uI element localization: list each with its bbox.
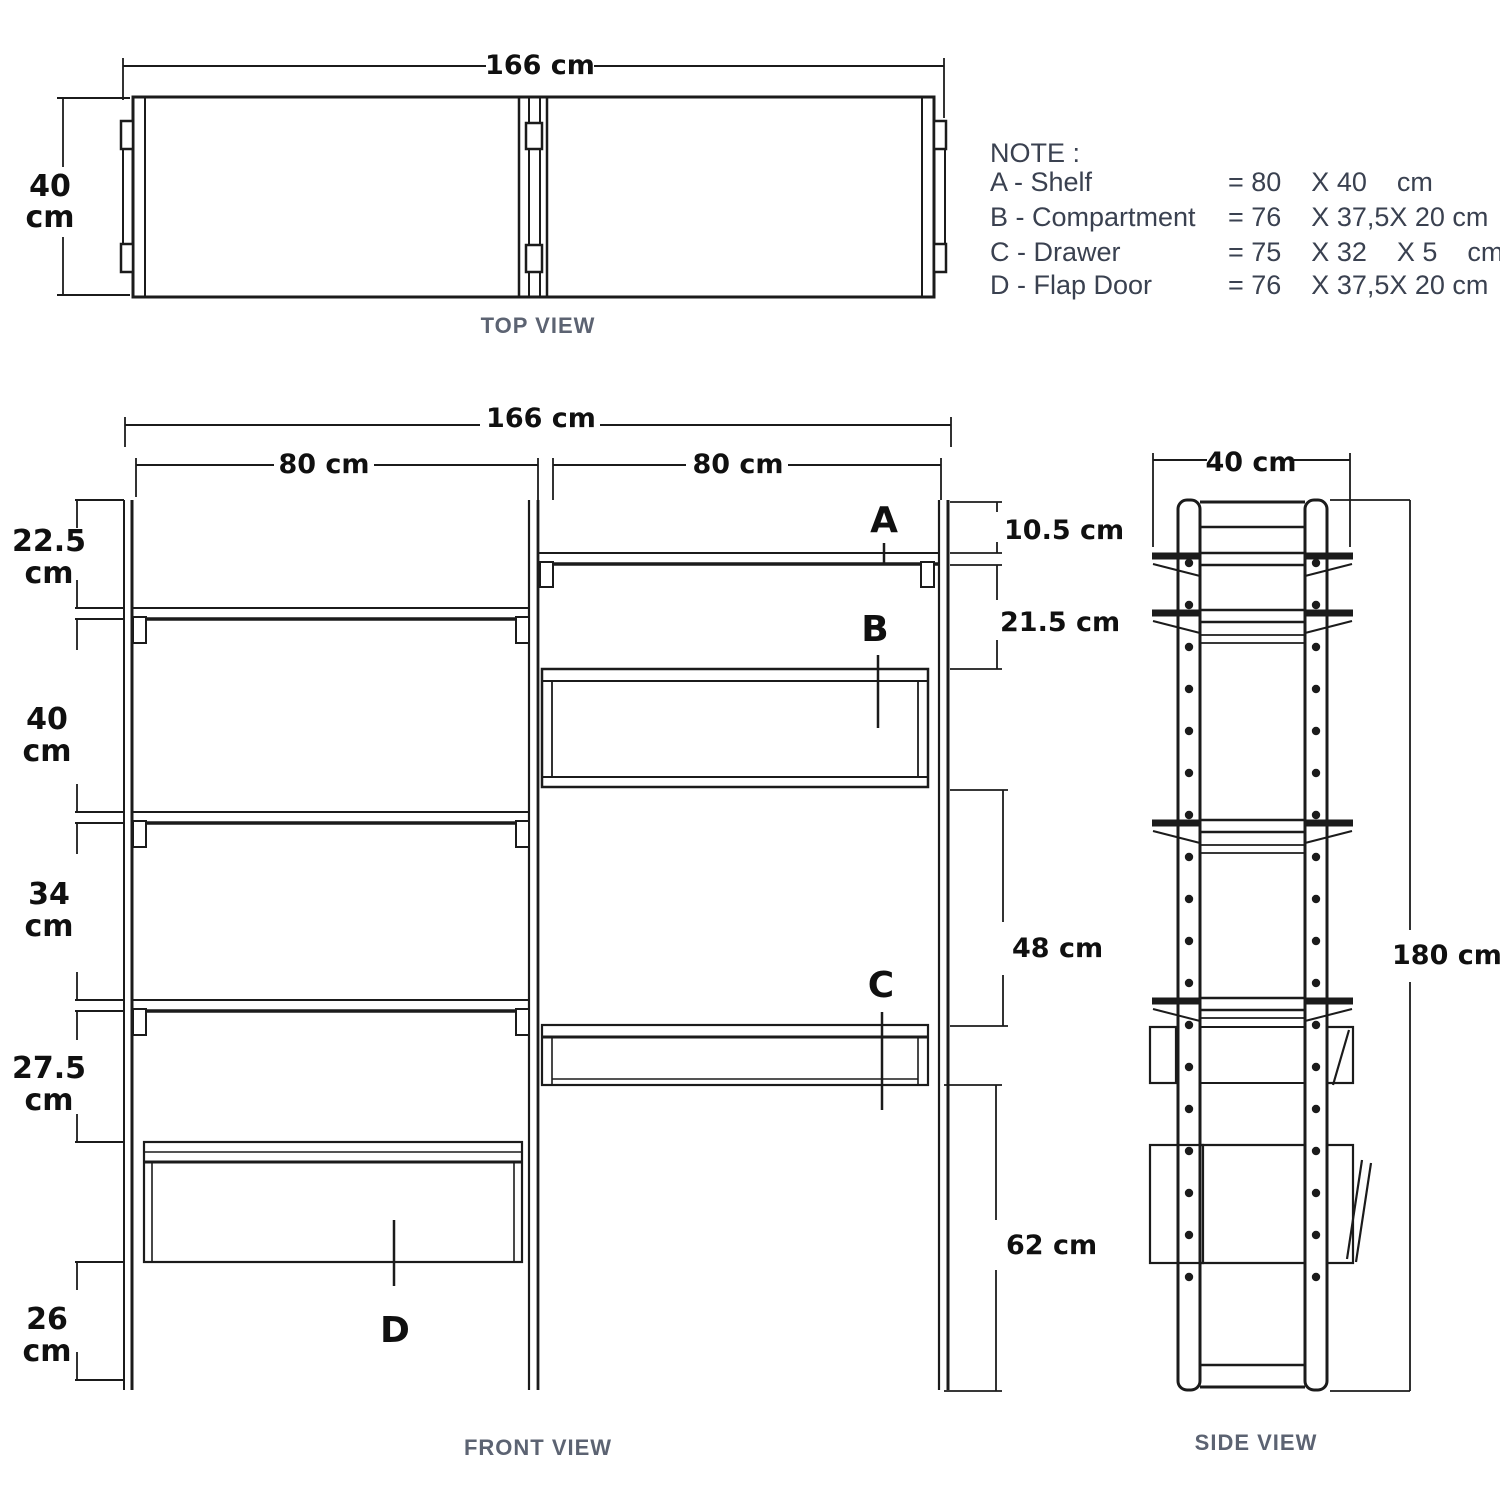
front-right-width-label: 80 cm [692, 449, 783, 480]
front-view-caption: FRONT VIEW [464, 1435, 612, 1460]
left-connector-top [121, 121, 133, 149]
side-shelf-brackets [1152, 556, 1353, 1021]
dim-26-unit: cm [22, 1334, 71, 1369]
front-part-labels: A B C D [380, 500, 898, 1351]
side-width-label: 40 cm [1205, 447, 1296, 478]
shelf-pin-hole [1185, 601, 1193, 609]
shelf-pin-hole [1185, 559, 1193, 567]
shelf-pin-hole [1185, 1273, 1193, 1281]
part-label-a: A [870, 500, 898, 541]
shelf-pin-hole [1185, 937, 1193, 945]
drawing-line [1327, 1027, 1353, 1083]
dim-21-5-label: 21.5 cm [1000, 607, 1120, 638]
drawing-line [516, 1009, 529, 1035]
side-horizontal-members [1200, 502, 1305, 1387]
side-width-dimension: 40 cm [1153, 447, 1350, 547]
front-right-dimensions: 10.5 cm 21.5 cm 48 cm 62 cm [944, 502, 1124, 1391]
side-view-caption: SIDE VIEW [1195, 1430, 1318, 1455]
front-panels [124, 500, 948, 1390]
front-left-shelves [132, 608, 529, 1035]
dim-26-value: 26 [26, 1302, 68, 1337]
drawing-line [516, 617, 529, 643]
shelf-pin-hole [1185, 853, 1193, 861]
drawing-line [133, 821, 146, 847]
shelf-pin-hole [1185, 895, 1193, 903]
drawing-sheet: 166 cm 40 cm [0, 0, 1500, 1500]
shelf-pin-hole [1312, 853, 1320, 861]
dim-22-5-unit: cm [24, 556, 73, 591]
shelf-pin-hole [1312, 811, 1320, 819]
drawing-line [133, 617, 146, 643]
drawing-line [516, 821, 529, 847]
dim-62-label: 62 cm [1006, 1230, 1097, 1261]
front-flap-door-d [144, 1142, 522, 1262]
side-flap-door-profile [1150, 1145, 1371, 1263]
shelf-pin-hole [1185, 811, 1193, 819]
shelf-pin-hole [1312, 727, 1320, 735]
top-view-width-label: 166 cm [485, 50, 595, 81]
note-item-value: = 76 X 37,5X 20 cm [1228, 270, 1488, 300]
shelf-pin-hole [1185, 979, 1193, 987]
dim-22-5-value: 22.5 [12, 524, 86, 559]
front-drawer-c [542, 1025, 928, 1085]
side-rails [1178, 500, 1327, 1390]
shelf-pin-hole [1312, 1273, 1320, 1281]
top-view-depth-value: 40 [29, 169, 71, 204]
shelf-pin-hole [1185, 1147, 1193, 1155]
side-height-dimension: 180 cm [1330, 500, 1500, 1391]
junction-connector-bottom [526, 245, 542, 272]
furniture-dimension-drawing: 166 cm 40 cm [0, 0, 1500, 1500]
rail-holes [1185, 559, 1320, 1281]
note-item-value: = 75 X 32 X 5 cm [1228, 237, 1500, 267]
front-left-width-dimension: 80 cm [136, 449, 538, 500]
note-item-label: B - Compartment [990, 202, 1196, 232]
front-right-width-dimension: 80 cm [553, 449, 941, 500]
shelf-pin-hole [1312, 1231, 1320, 1239]
right-connector-top [934, 121, 946, 149]
dim-40-unit: cm [22, 734, 71, 769]
shelf-pin-hole [1185, 643, 1193, 651]
dim-40-value: 40 [26, 702, 68, 737]
shelf-pin-hole [1312, 1105, 1320, 1113]
note-block: NOTE : A - Shelf = 80 X 40 cm B - Compar… [990, 138, 1500, 300]
front-left-dimensions: 22.5 cm 40 cm 34 cm 27.5 cm 26 cm [12, 500, 124, 1380]
dim-48-label: 48 cm [1012, 933, 1103, 964]
right-connector-bottom [934, 244, 946, 272]
side-drawer-profile [1150, 1027, 1353, 1085]
junction-connector-top [526, 123, 542, 149]
drawing-line [1150, 1027, 1176, 1083]
front-compartment-b [542, 669, 928, 787]
shelf-pin-hole [1185, 1189, 1193, 1197]
shelf-pin-hole [1312, 559, 1320, 567]
shelf-pin-hole [1312, 1147, 1320, 1155]
front-total-width-label: 166 cm [486, 403, 596, 434]
top-view-caption: TOP VIEW [481, 313, 596, 338]
shelf-pin-hole [1185, 727, 1193, 735]
dim-34-unit: cm [24, 909, 73, 944]
shelf-pin-hole [1185, 685, 1193, 693]
top-view-body [121, 97, 946, 297]
part-label-d: D [380, 1310, 410, 1351]
dim-27-5-unit: cm [24, 1083, 73, 1118]
drawing-line [542, 669, 928, 787]
part-label-b: B [861, 609, 888, 650]
dim-34-value: 34 [28, 877, 70, 912]
front-shelf-a [538, 553, 939, 587]
shelf-pin-hole [1185, 1021, 1193, 1029]
drawing-line [921, 562, 934, 587]
note-title: NOTE : [990, 138, 1080, 168]
shelf-pin-hole [1312, 1189, 1320, 1197]
shelf-pin-hole [1312, 601, 1320, 609]
shelf-pin-hole [1312, 895, 1320, 903]
top-view-width-dimension: 166 cm [123, 46, 944, 118]
top-view: 166 cm 40 cm [25, 46, 946, 338]
shelf-pin-hole [1185, 1105, 1193, 1113]
shelf-pin-hole [1312, 979, 1320, 987]
shelf-pin-hole [1185, 1063, 1193, 1071]
drawing-line [540, 562, 553, 587]
shelf-pin-hole [1312, 1021, 1320, 1029]
note-item-label: A - Shelf [990, 167, 1093, 197]
shelf-pin-hole [1185, 1231, 1193, 1239]
shelf-pin-hole [1312, 937, 1320, 945]
drawing-line [542, 1025, 928, 1085]
top-view-depth-dimension: 40 cm [25, 98, 130, 295]
dim-10-5-label: 10.5 cm [1004, 515, 1124, 546]
shelf-pin-hole [1312, 769, 1320, 777]
side-height-label: 180 cm [1392, 940, 1500, 971]
front-left-width-label: 80 cm [278, 449, 369, 480]
drawing-line [144, 1142, 522, 1262]
note-item-label: D - Flap Door [990, 270, 1152, 300]
front-view: 166 cm 80 cm 80 cm [12, 402, 1124, 1460]
shelf-pin-hole [1312, 685, 1320, 693]
shelf-pin-hole [1312, 1063, 1320, 1071]
left-connector-bottom [121, 244, 133, 272]
front-total-width-dimension: 166 cm [125, 402, 951, 447]
drawing-line [1333, 1030, 1349, 1085]
top-view-depth-unit: cm [25, 200, 74, 235]
side-view: 40 cm [1150, 447, 1500, 1455]
shelf-pin-hole [1185, 769, 1193, 777]
shelf-pin-hole [1312, 643, 1320, 651]
part-label-c: C [868, 965, 894, 1006]
dim-27-5-value: 27.5 [12, 1051, 86, 1086]
note-item-label: C - Drawer [990, 237, 1121, 267]
note-item-value: = 76 X 37,5X 20 cm [1228, 202, 1488, 232]
drawing-line [133, 1009, 146, 1035]
note-item-value: = 80 X 40 cm [1228, 167, 1433, 197]
